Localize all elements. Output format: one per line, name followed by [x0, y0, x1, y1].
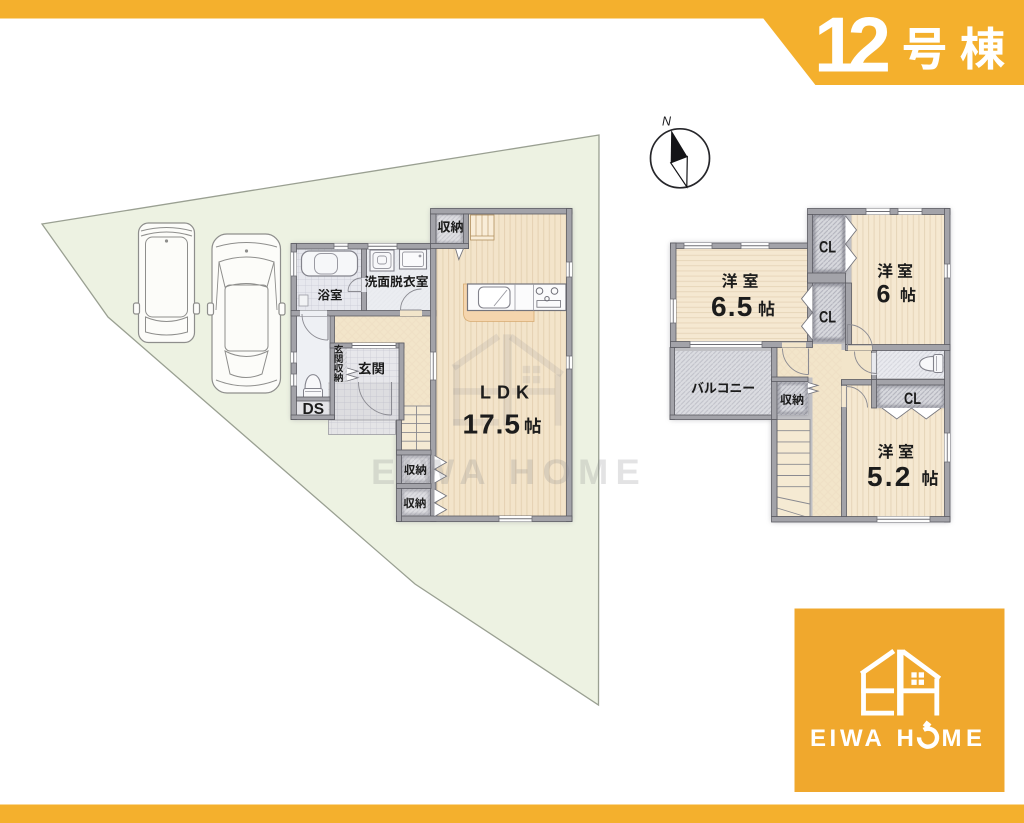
- svg-text:DS: DS: [303, 401, 325, 418]
- svg-text:A: A: [865, 725, 882, 752]
- svg-text:CL: CL: [904, 390, 921, 408]
- svg-text:N: N: [662, 115, 672, 129]
- svg-text:6: 6: [877, 280, 891, 308]
- svg-text:I: I: [830, 725, 837, 752]
- svg-text:12: 12: [814, 1, 891, 89]
- svg-text:E: E: [810, 725, 826, 752]
- svg-text:LDK: LDK: [480, 382, 535, 402]
- svg-text:6.5: 6.5: [711, 291, 754, 322]
- svg-text:5.2: 5.2: [867, 461, 913, 492]
- svg-text:CL: CL: [819, 309, 836, 327]
- svg-text:M: M: [942, 725, 962, 752]
- svg-text:CL: CL: [819, 239, 836, 257]
- svg-text:17.5: 17.5: [463, 409, 522, 440]
- svg-text:W: W: [840, 725, 863, 752]
- svg-text:E: E: [966, 725, 982, 752]
- svg-text:H: H: [897, 725, 914, 752]
